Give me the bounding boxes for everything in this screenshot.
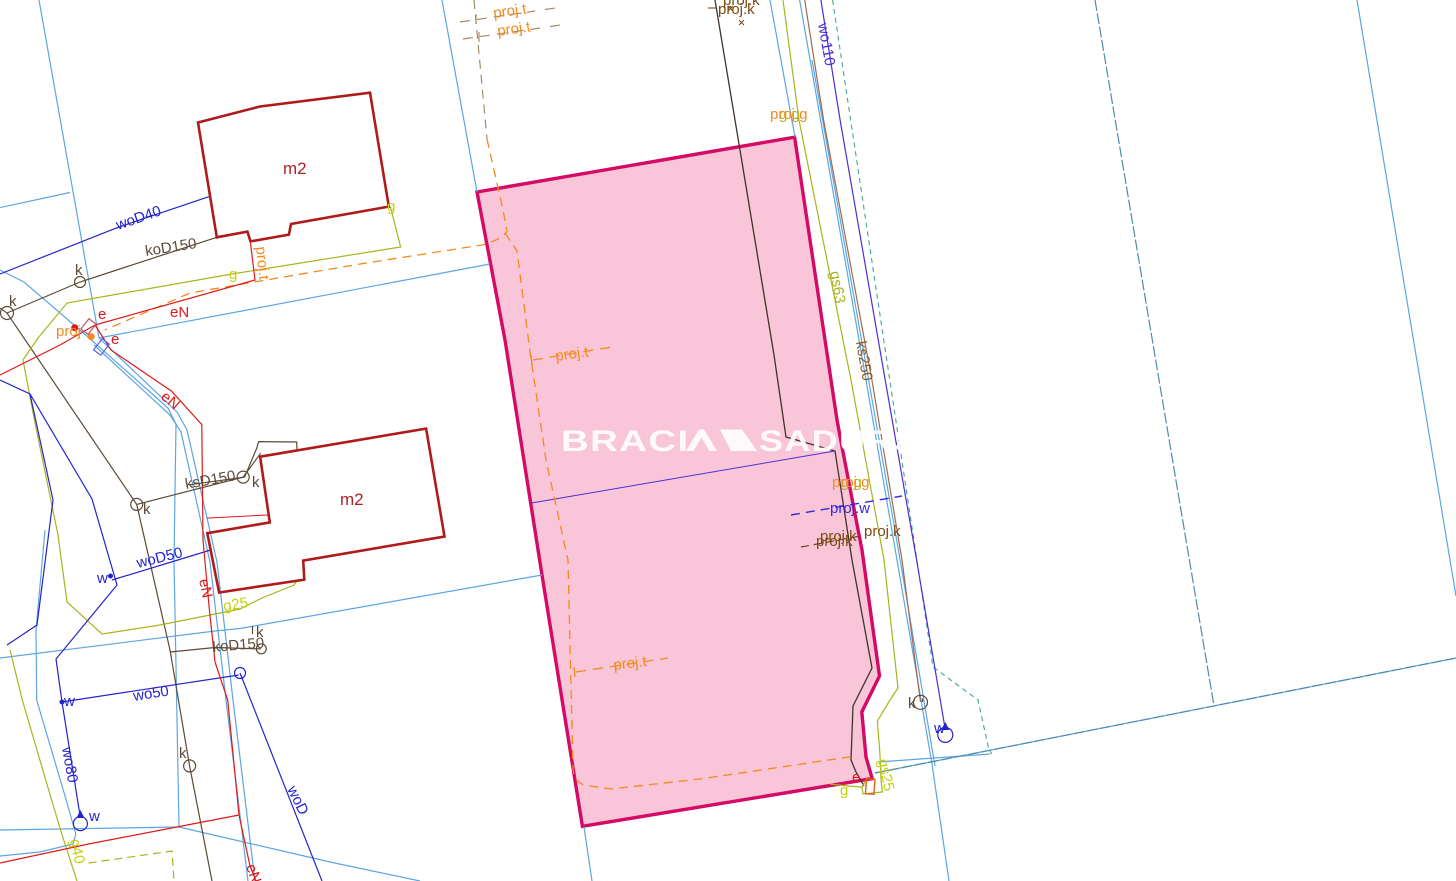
svg-text:m2: m2 [283,159,307,178]
svg-text:k: k [256,624,264,641]
svg-text:w: w [96,570,108,587]
svg-text:k: k [75,262,83,279]
svg-text:e: e [111,331,119,348]
svg-text:proj.g: proj.g [832,474,870,491]
svg-text:BRACI: BRACI [561,425,690,458]
svg-text:g: g [387,198,395,215]
svg-text:e: e [98,306,106,323]
svg-text:SADURSC: SADURSC [759,424,946,457]
svg-text:k: k [179,745,187,762]
svg-text:w: w [88,808,100,825]
svg-text:proj: proj [56,323,81,340]
svg-text:k: k [908,695,916,712]
svg-text:w: w [63,693,75,710]
svg-text:eN: eN [170,304,189,321]
svg-text:e: e [852,769,860,786]
svg-text:proj.k: proj.k [820,528,857,545]
svg-text:k: k [143,501,151,518]
svg-text:w: w [933,720,945,737]
svg-text:m2: m2 [340,490,364,509]
svg-text:proj.g: proj.g [770,106,808,123]
svg-text:proj.t: proj.t [252,246,272,282]
svg-text:k: k [9,293,17,310]
svg-text:g: g [229,266,237,283]
svg-text:k: k [252,474,260,491]
svg-text:proj.k: proj.k [864,523,901,540]
svg-text:g: g [840,782,848,799]
svg-text:proj.k: proj.k [723,0,760,9]
svg-text:proj.w: proj.w [830,500,870,517]
